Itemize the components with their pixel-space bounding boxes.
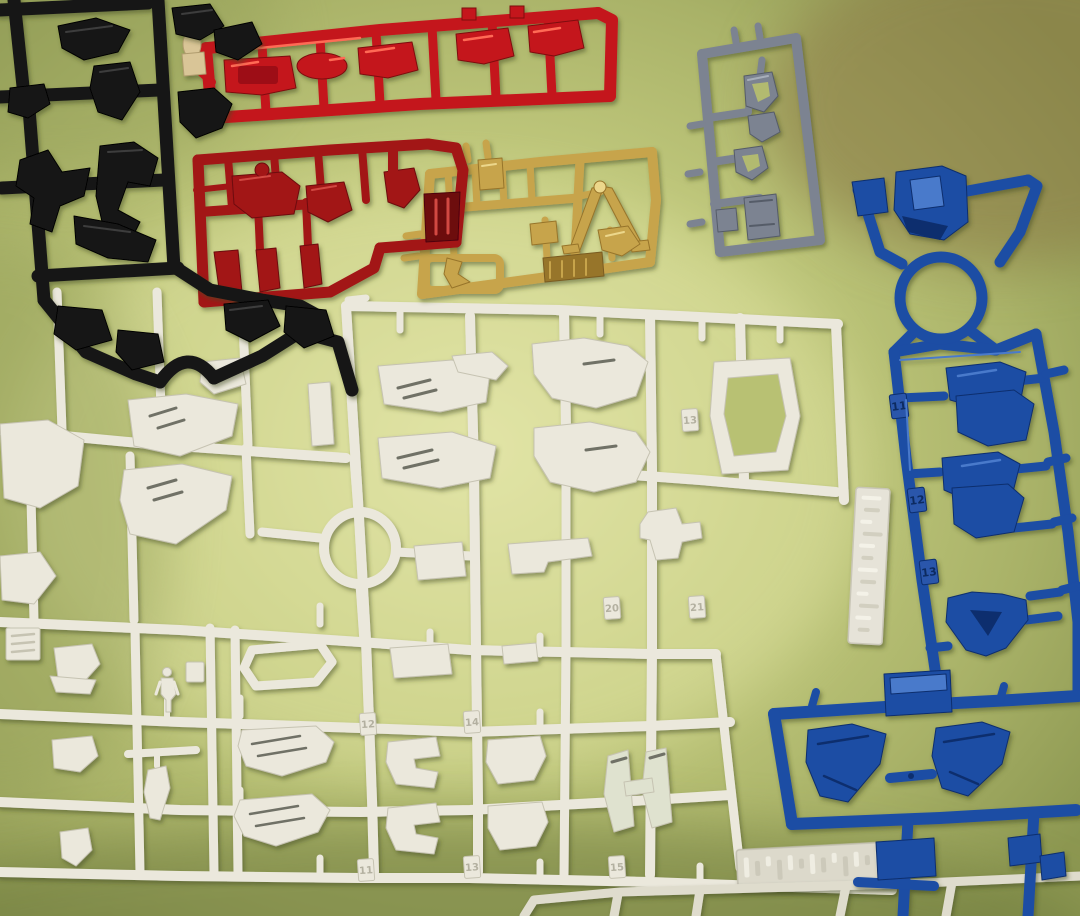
part-number: 11: [359, 865, 374, 877]
part-number: 12: [909, 493, 926, 508]
part-number-tag: 20: [603, 596, 620, 619]
part-number: 15: [610, 862, 625, 874]
part-number-tag: 12: [907, 487, 927, 513]
part-number: 13: [465, 862, 480, 874]
molded-text-plate-small: [6, 628, 40, 660]
part-number-tag: 13: [919, 559, 939, 585]
molded-text-plate-vertical: [848, 487, 890, 645]
part-number-tag: 11: [357, 858, 374, 881]
part-number-tag: 14: [463, 710, 480, 733]
part-number: 20: [605, 603, 620, 615]
part-number-tag: 15: [608, 855, 625, 878]
model-kit-photo: 1320211214111315111213: [0, 0, 1080, 916]
torso-frame-part: [710, 358, 800, 474]
part-number: 21: [690, 602, 705, 614]
part-number: 13: [683, 415, 698, 427]
part-number: 13: [921, 565, 938, 580]
part-number-tag: 12: [359, 712, 376, 735]
part-number: 14: [465, 717, 480, 729]
part-number: 11: [891, 399, 908, 414]
part-number-tag: 21: [688, 595, 705, 618]
photo-stage: 1320211214111315111213: [0, 0, 1080, 916]
part-number-tag: 13: [681, 408, 698, 431]
part-number-tag: 13: [463, 855, 480, 878]
part-number: 12: [361, 719, 376, 731]
